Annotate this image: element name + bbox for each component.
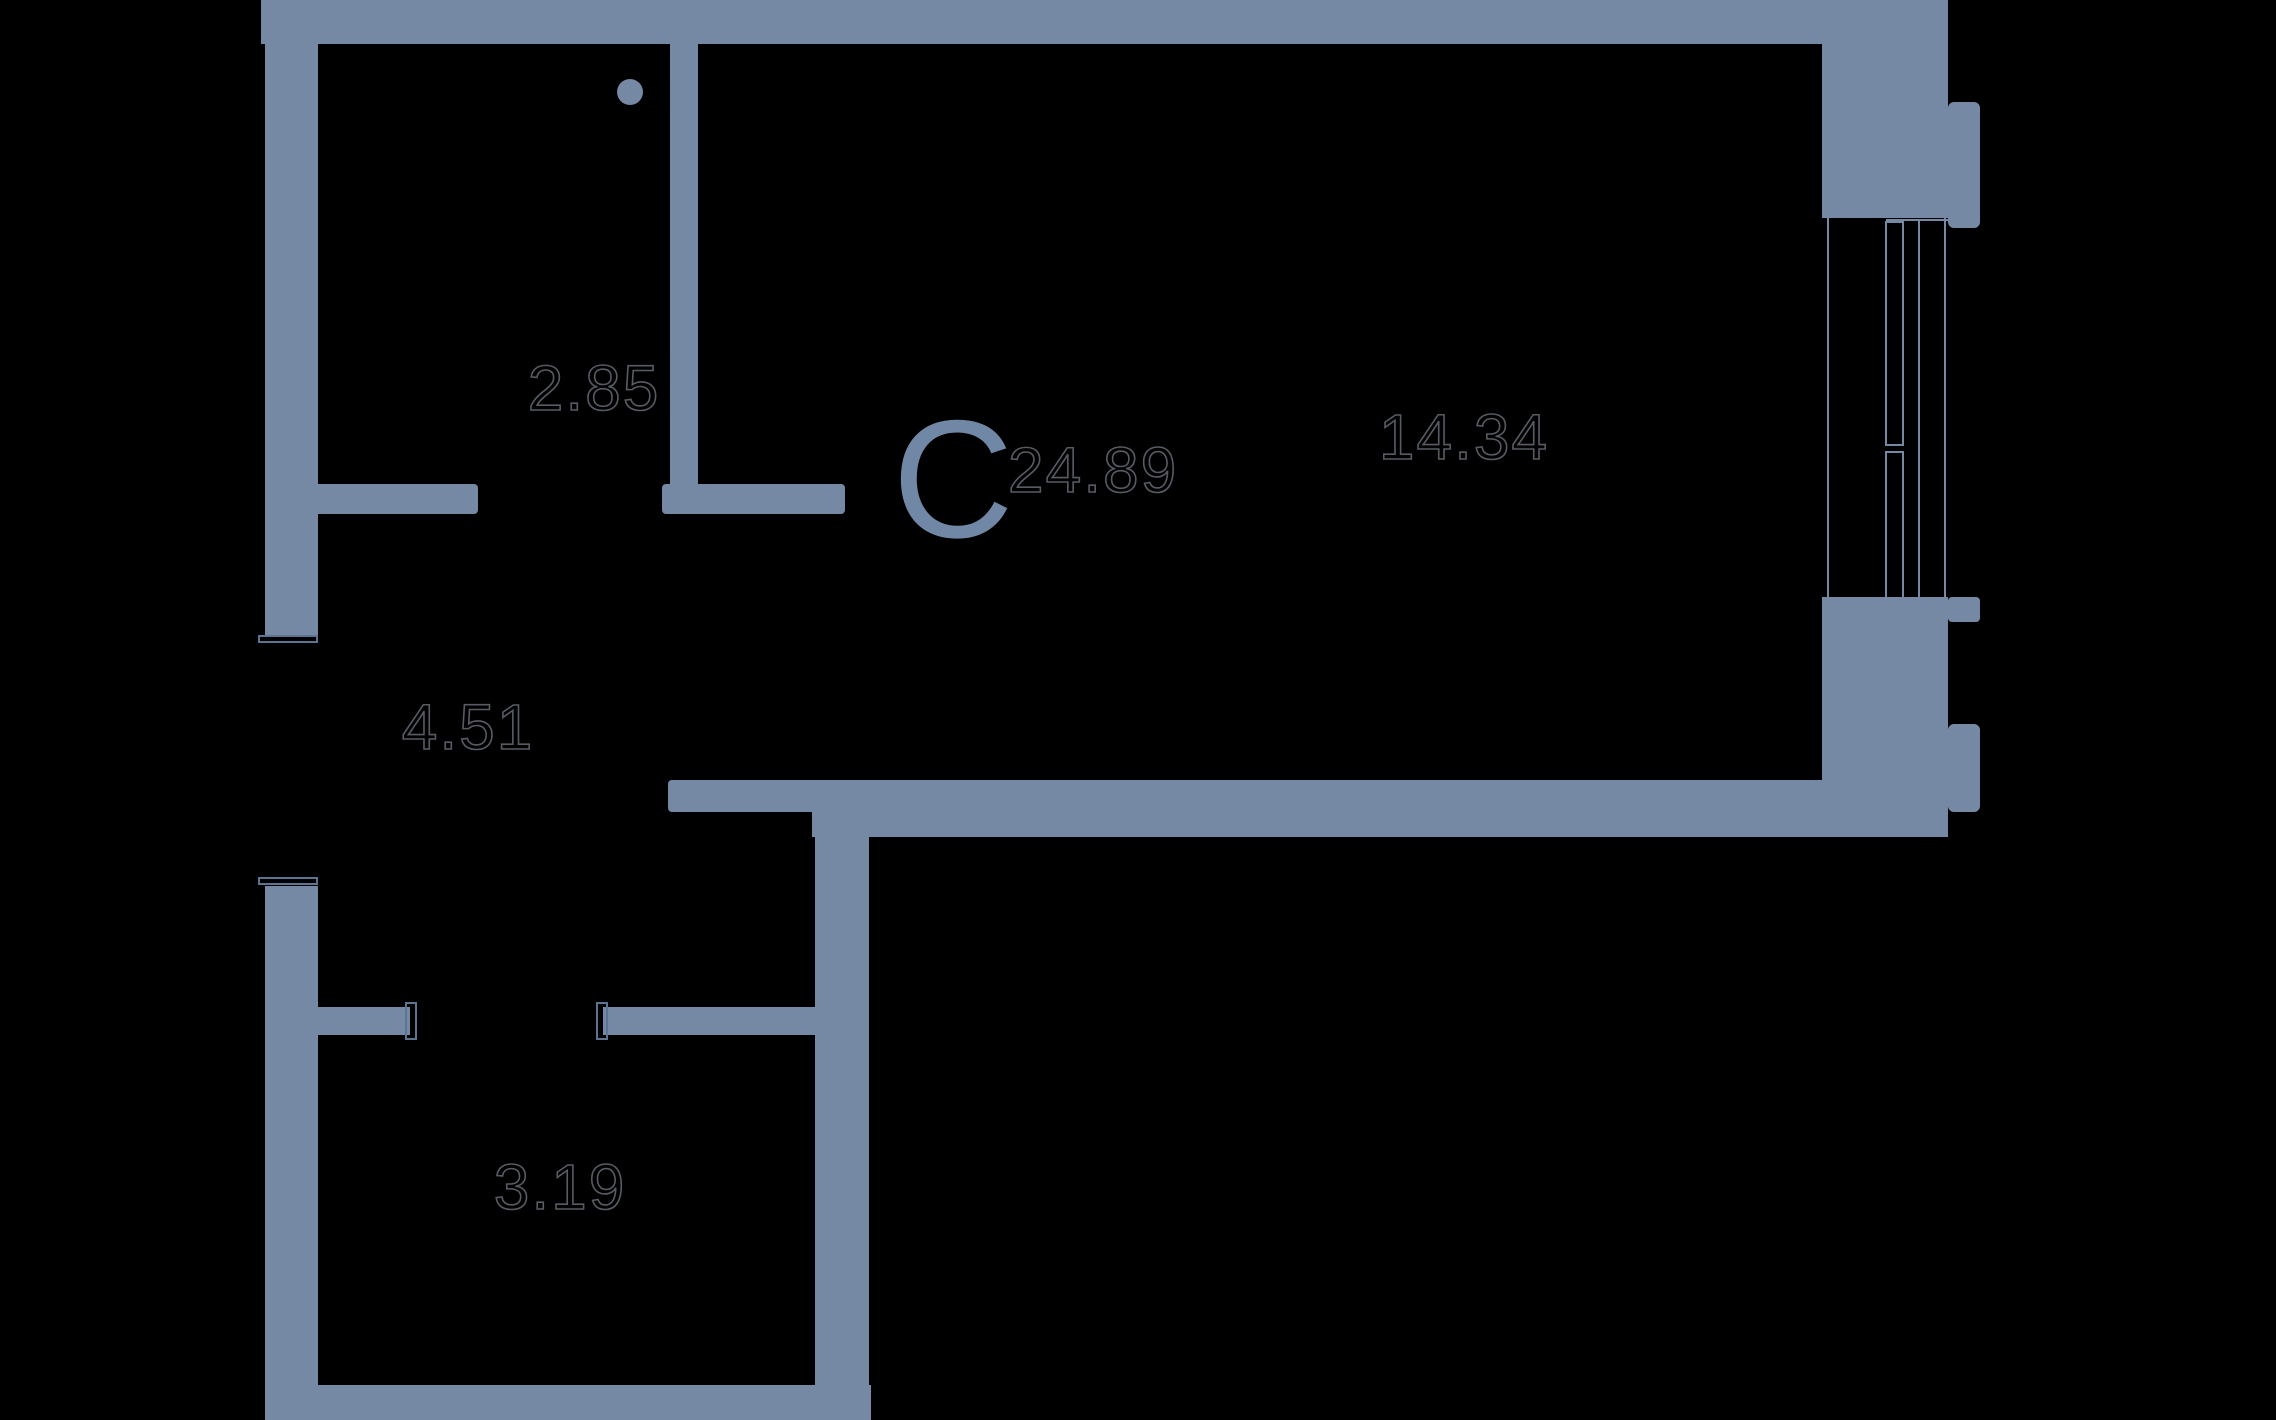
floor-plan-canvas: C 24.89 2.85 14.34 4.51 3.19	[0, 0, 2276, 1420]
window-sash-upper	[1886, 222, 1903, 445]
wall-left-lower	[265, 886, 318, 1420]
wall-central-column	[815, 780, 869, 1420]
room-area-label-bottom: 3.19	[494, 1151, 627, 1223]
wall-bottom-exterior	[265, 1385, 871, 1420]
entry-threshold-upper	[259, 636, 317, 642]
room-area-label-living: 14.34	[1379, 401, 1549, 473]
wall-bottomroom-top-left	[265, 1007, 410, 1035]
apartment-type-letter: C	[892, 385, 1013, 573]
wall-facade-bottom-block	[1822, 597, 1948, 837]
floor-plan: C 24.89 2.85 14.34 4.51 3.19	[0, 0, 2276, 1420]
wall-facade-top-tab	[1948, 102, 1980, 228]
wall-bottomroom-top-right	[603, 1007, 815, 1035]
wall-top-exterior	[261, 0, 1948, 44]
wall-topleft-room-right	[670, 40, 698, 488]
wall-facade-top-column	[1822, 0, 1948, 218]
wall-facade-bottom-tab	[1948, 724, 1980, 812]
wall-left-upper	[265, 0, 318, 637]
wall-living-south-thick	[812, 780, 1948, 837]
total-area-label: 24.89	[1008, 434, 1178, 506]
entry-threshold-lower	[259, 878, 317, 884]
wall-living-south-thin	[668, 780, 818, 812]
wall-topleft-room-south-stub	[310, 484, 478, 514]
window-sash-lower	[1886, 452, 1903, 603]
room-area-label-hall: 4.51	[402, 691, 535, 763]
window	[1828, 218, 1948, 604]
wall-facade-bottom-ledge	[1948, 597, 1980, 622]
room-area-label-top-left: 2.85	[528, 352, 661, 424]
vent-dot	[617, 79, 643, 105]
wall-topleft-room-south	[662, 484, 845, 514]
